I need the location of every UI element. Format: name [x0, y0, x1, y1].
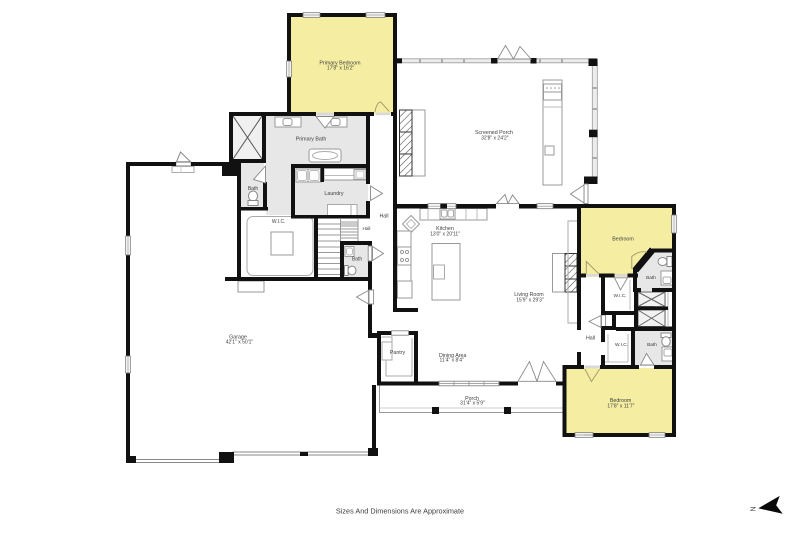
svg-text:Bath: Bath — [248, 186, 259, 192]
svg-text:17'8" x 11'7": 17'8" x 11'7" — [607, 403, 634, 409]
svg-text:Bath: Bath — [352, 256, 363, 262]
svg-text:Bath: Bath — [647, 342, 657, 348]
svg-text:Hall: Hall — [586, 336, 595, 342]
svg-text:32'8" x 24'2": 32'8" x 24'2" — [481, 135, 509, 141]
svg-text:42'1" x 50'1": 42'1" x 50'1" — [226, 339, 254, 345]
svg-text:Hall: Hall — [363, 226, 371, 231]
svg-text:31'4" x 5'9": 31'4" x 5'9" — [460, 401, 485, 407]
svg-text:W.I.C.: W.I.C. — [615, 342, 628, 348]
svg-text:11'4" x 8'4": 11'4" x 8'4" — [440, 358, 464, 364]
svg-text:Laundry: Laundry — [324, 191, 343, 197]
svg-text:W.I.C.: W.I.C. — [272, 219, 286, 225]
svg-text:15'9" x 29'3": 15'9" x 29'3" — [516, 297, 544, 303]
svg-text:Primary Bath: Primary Bath — [296, 137, 327, 143]
svg-text:Hall: Hall — [379, 213, 388, 219]
svg-text:13'0" x 20'11": 13'0" x 20'11" — [430, 232, 460, 238]
svg-text:Bath: Bath — [646, 275, 656, 281]
svg-text:N: N — [751, 506, 758, 511]
svg-text:Bedroom: Bedroom — [612, 237, 634, 243]
svg-text:Pantry: Pantry — [390, 350, 406, 356]
svg-text:17'8" x 16'2": 17'8" x 16'2" — [327, 66, 355, 72]
svg-text:W.I.C.: W.I.C. — [613, 293, 626, 299]
svg-text:Sizes And Dimensions Are Appro: Sizes And Dimensions Are Approximate — [336, 507, 464, 516]
